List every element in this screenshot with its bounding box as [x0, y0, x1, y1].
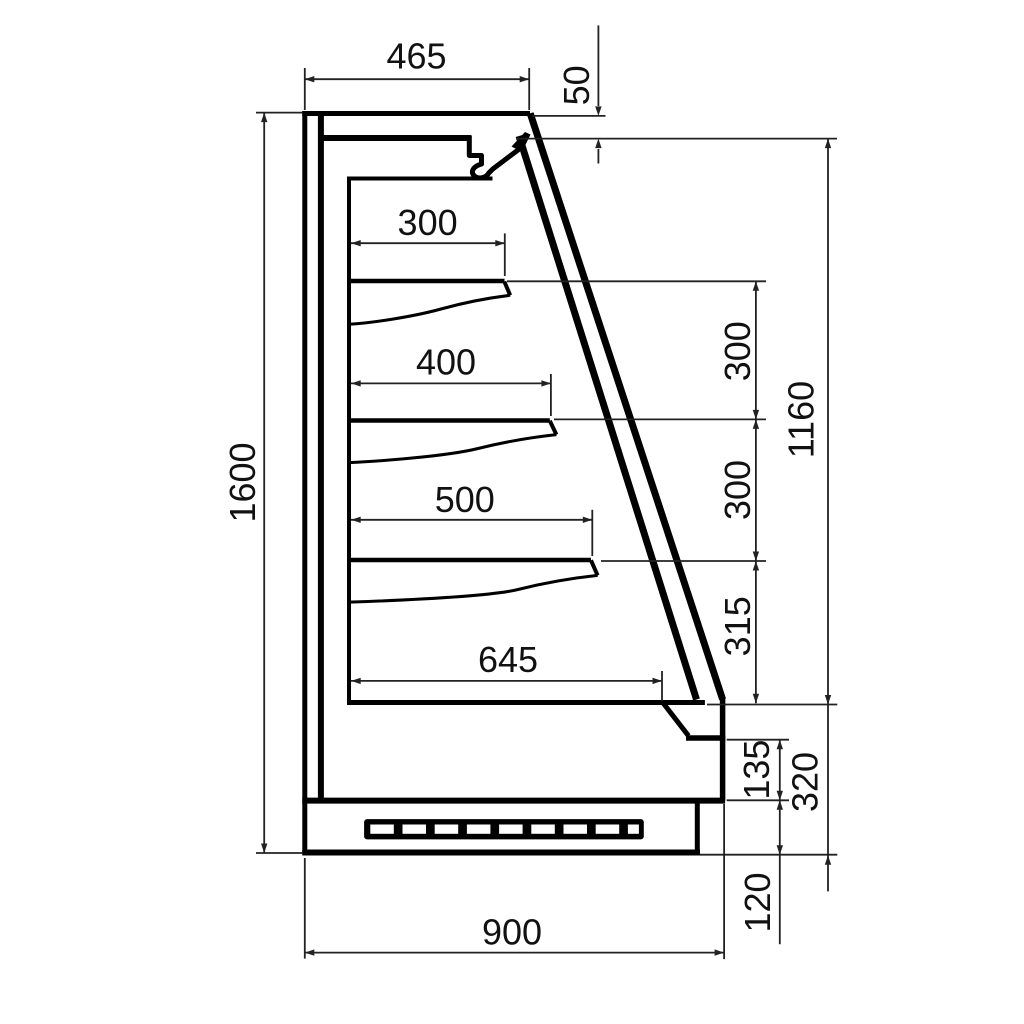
svg-text:300: 300 — [717, 460, 758, 520]
svg-text:135: 135 — [736, 740, 777, 800]
svg-text:315: 315 — [717, 596, 758, 656]
svg-text:120: 120 — [737, 872, 778, 932]
svg-text:900: 900 — [482, 912, 542, 953]
svg-text:320: 320 — [785, 752, 826, 812]
svg-text:300: 300 — [717, 321, 758, 381]
svg-text:1600: 1600 — [222, 442, 263, 522]
svg-text:400: 400 — [416, 342, 476, 383]
svg-text:645: 645 — [478, 639, 538, 680]
svg-text:50: 50 — [556, 65, 597, 105]
svg-text:1160: 1160 — [781, 381, 822, 458]
svg-text:500: 500 — [435, 479, 495, 520]
svg-text:465: 465 — [386, 36, 446, 77]
svg-text:300: 300 — [398, 202, 458, 243]
